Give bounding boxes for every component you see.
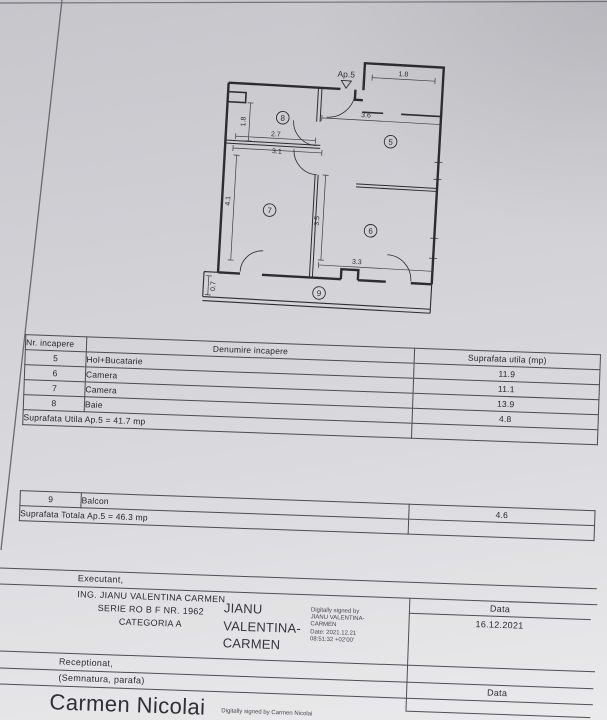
wall-stubs: [227, 92, 441, 117]
room-6-number: 6: [368, 227, 373, 236]
receptionat-label: Receptionat,: [59, 657, 113, 669]
dim-room6-height: 3.5: [314, 216, 322, 226]
dim-hall-width: 3.6: [361, 112, 371, 120]
room-9-number: 9: [317, 289, 322, 298]
interior-walls: [218, 83, 442, 285]
apartment-outer-walls: [218, 56, 444, 285]
floor-plan: Ap.5 8 5 7 6 9 1.8 3.6 1.8 2.7 3.1 4.1 3…: [193, 49, 458, 335]
dim-bath-width-outer: 3.1: [272, 148, 282, 156]
room-8-number: 8: [280, 114, 285, 123]
scanned-document-page: Ap.5 8 5 7 6 9 1.8 3.6 1.8 2.7 3.1 4.1 3…: [0, 0, 607, 720]
balcony-table: 9 Balcon 4.6 Suprafata Totala Ap.5 = 46.…: [19, 490, 596, 541]
dim-room6-width: 3.3: [352, 259, 362, 267]
paper-content: Ap.5 8 5 7 6 9 1.8 3.6 1.8 2.7 3.1 4.1 3…: [0, 0, 607, 720]
executant-digital-signature-details: Digitally signed by JIANU VALENTINA- CAR…: [310, 607, 391, 646]
receptionat-data-underline: [405, 711, 590, 718]
room-circles: [258, 111, 398, 304]
apartment-label: Ap.5: [337, 69, 355, 80]
door-arcs: [240, 86, 421, 281]
room-7-number: 7: [267, 206, 272, 215]
semnatura-parafa-label: (Semnatura, parafa): [58, 673, 145, 686]
dim-bath-height: 1.8: [240, 116, 248, 126]
room-5-number: 5: [388, 138, 393, 147]
dim-balcony-depth: 0.7: [210, 281, 218, 291]
rooms-table: Nr. incapere Denumire incapere Suprafata…: [22, 334, 601, 445]
receptionat-digital-signature-details: Digitally signed by Carmen Nicolai: [221, 708, 371, 720]
executant-digital-signature-name: JIANU VALENTINA-CARMEN: [222, 599, 316, 655]
entry-marker-triangle: [341, 80, 351, 88]
dim-room7-height: 4.1: [225, 196, 233, 206]
executant-label: Executant,: [78, 573, 124, 585]
dim-extension-width: 1.8: [398, 71, 408, 79]
dim-bath-width-inner: 2.7: [271, 131, 281, 139]
receptionat-digital-signature-name: Carmen Nicolai: [49, 689, 206, 720]
